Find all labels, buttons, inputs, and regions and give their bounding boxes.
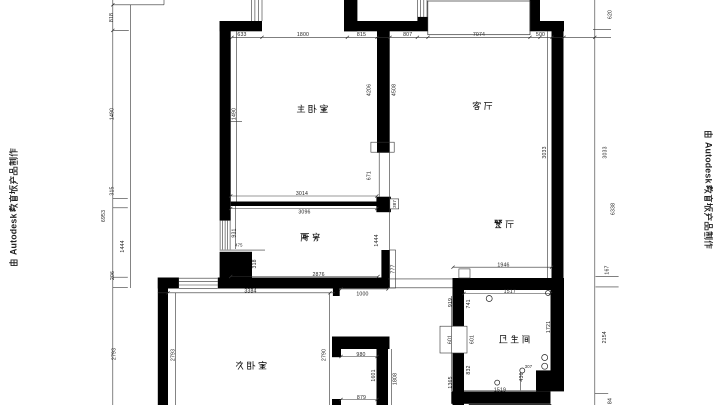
svg-text:2793: 2793 <box>171 349 177 361</box>
svg-text:601: 601 <box>470 335 476 344</box>
svg-text:879: 879 <box>357 395 366 401</box>
svg-text:1946: 1946 <box>497 263 509 269</box>
svg-text:2793: 2793 <box>111 348 117 360</box>
svg-text:633: 633 <box>237 32 246 38</box>
svg-text:601: 601 <box>448 335 454 344</box>
svg-text:1365: 1365 <box>448 376 454 388</box>
svg-text:6338: 6338 <box>611 203 617 215</box>
svg-text:1519: 1519 <box>494 387 506 393</box>
svg-text:3014: 3014 <box>296 191 308 197</box>
svg-text:6953: 6953 <box>101 210 107 222</box>
svg-text:3096: 3096 <box>298 210 310 216</box>
svg-text:3033: 3033 <box>603 146 609 158</box>
svg-text:Autodesk: Autodesk <box>704 142 714 184</box>
svg-text:807: 807 <box>403 32 412 38</box>
svg-text:387: 387 <box>392 200 397 208</box>
svg-text:4508: 4508 <box>392 84 398 96</box>
svg-text:1601: 1601 <box>371 369 377 381</box>
svg-text:1721: 1721 <box>546 321 552 333</box>
svg-text:2790: 2790 <box>322 349 328 361</box>
svg-text:1517: 1517 <box>504 289 516 295</box>
svg-text:1444: 1444 <box>120 240 126 252</box>
svg-text:1490: 1490 <box>109 108 115 120</box>
svg-text:832: 832 <box>466 365 472 374</box>
svg-text:206: 206 <box>110 271 116 280</box>
svg-text:741: 741 <box>466 299 472 308</box>
svg-text:3033: 3033 <box>542 146 548 158</box>
svg-text:815: 815 <box>357 32 366 38</box>
svg-text:84: 84 <box>608 398 614 404</box>
svg-text:4206: 4206 <box>366 84 372 96</box>
svg-text:1444: 1444 <box>374 234 380 246</box>
svg-text:980: 980 <box>356 352 365 358</box>
svg-text:1000: 1000 <box>356 292 368 298</box>
svg-text:671: 671 <box>367 171 373 180</box>
svg-text:3384: 3384 <box>244 289 256 295</box>
svg-text:315: 315 <box>110 186 116 195</box>
svg-text:1490: 1490 <box>232 108 238 120</box>
svg-text:620: 620 <box>607 10 613 19</box>
svg-text:436: 436 <box>519 372 525 381</box>
svg-text:931: 931 <box>231 228 237 237</box>
svg-text:307: 307 <box>525 364 533 369</box>
svg-text:7074: 7074 <box>473 32 485 38</box>
svg-text:2876: 2876 <box>312 272 324 278</box>
svg-text:475: 475 <box>235 243 243 248</box>
svg-text:818: 818 <box>109 13 115 22</box>
svg-text:2154: 2154 <box>602 331 608 343</box>
svg-text:777: 777 <box>391 264 397 273</box>
svg-text:318: 318 <box>252 259 258 268</box>
svg-text:1808: 1808 <box>393 373 399 385</box>
svg-text:919: 919 <box>448 298 454 307</box>
svg-text:500: 500 <box>536 32 545 38</box>
svg-text:1800: 1800 <box>297 32 309 38</box>
svg-text:Autodesk: Autodesk <box>9 213 19 255</box>
svg-text:167: 167 <box>605 265 611 274</box>
